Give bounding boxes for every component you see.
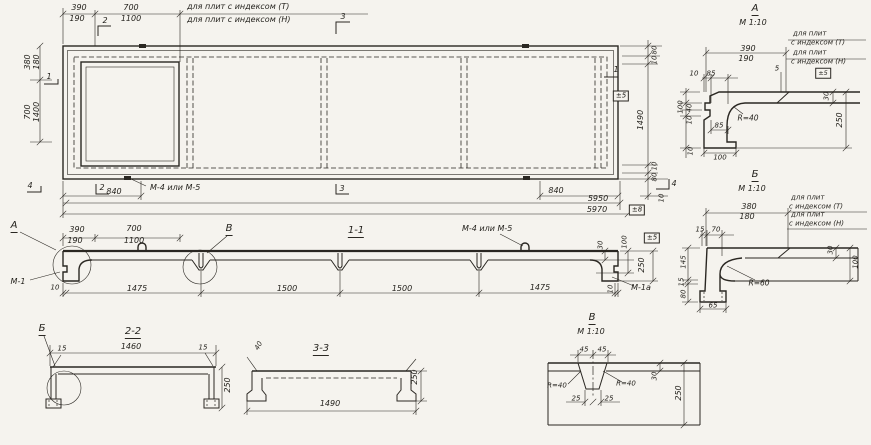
detail-b-dim-100-right: 100 — [853, 255, 860, 268]
detail-b-dim-15-top: 15 — [696, 227, 705, 234]
detail-b-note-line-4: с индексом (Н) — [789, 221, 844, 228]
detail-b-dim-65-foot: 65 — [709, 303, 718, 310]
detail-a-dim-85-mid: 85 — [715, 123, 724, 130]
section-2-2-section-title: 2-2 — [125, 327, 141, 339]
plan-dim-390-top: 390 — [71, 4, 86, 12]
section-1-1-dim-1500-left: 1500 — [277, 285, 297, 293]
plan-dim-840-right: 840 — [548, 187, 563, 195]
plan-dim-5950: 5950 — [588, 195, 608, 203]
section-1-1-dim-1475-right: 1475 — [530, 284, 550, 292]
detail-v-dim-25-right: 25 — [605, 396, 614, 403]
plan-dim-380-left: 380 — [24, 54, 32, 69]
plan-section-mark-1-left: 1 — [46, 73, 51, 81]
detail-b-note-line-3: для плит — [791, 212, 824, 219]
detail-a-dim-250-right: 250 — [836, 112, 844, 127]
detail-v-dim-45-left: 45 — [580, 347, 589, 354]
plan-dim-700-left: 700 — [24, 104, 32, 119]
drawing-labels: 3901907001100для плит с индексом (Т)для … — [0, 0, 871, 445]
detail-v-dim-250: 250 — [675, 385, 683, 400]
detail-a-note-line-4: с индексом (Н) — [791, 59, 846, 66]
detail-v-detail-scale: М 1:10 — [577, 328, 604, 336]
detail-a-dim-190: 190 — [738, 55, 753, 63]
section-2-2-dim-15-left: 15 — [58, 346, 67, 353]
detail-v-dim-45-right: 45 — [598, 347, 607, 354]
detail-a-dim-10-left: 10 — [687, 116, 694, 125]
section-1-1-tol-plus-minus-5: ±5 — [644, 233, 660, 244]
detail-v-detail-title: В — [589, 313, 596, 325]
detail-b-dim-380: 380 — [741, 203, 756, 211]
detail-b-dim-180: 180 — [739, 213, 754, 221]
detail-a-tol-plus-minus-5: ±5 — [815, 68, 831, 79]
detail-a-note-line-3: для плит — [793, 50, 826, 57]
plan-section-mark-1-right: 1 — [613, 66, 618, 74]
plan-dim-10-right-bottom: 10 — [652, 162, 659, 171]
plan-dim-80-right-top: 80 — [652, 46, 659, 55]
detail-b-radius-60: R=60 — [748, 279, 769, 287]
plan-tol-plus-minus-8: ±8 — [629, 205, 645, 216]
plan-dim-190-top: 190 — [69, 15, 84, 23]
detail-b-detail-title: Б — [752, 170, 759, 182]
detail-v-dim-30: 30 — [652, 372, 659, 381]
drawing-canvas: 3901907001100для плит с индексом (Т)для … — [0, 0, 871, 445]
plan-note-plates-index-n: для плит с индексом (Н) — [187, 16, 291, 24]
plan-dim-840-left: 840 — [106, 188, 121, 196]
plan-note-plates-index-t: для плит с индексом (Т) — [187, 3, 289, 11]
detail-b-note-line-1: для плит — [791, 195, 824, 202]
plan-dim-10-right-outer: 10 — [659, 194, 666, 203]
plan-dim-1400-left: 1400 — [33, 102, 41, 122]
section-1-1-callout-m1a: М-1а — [631, 284, 651, 292]
section-2-2-dim-15-right: 15 — [199, 345, 208, 352]
detail-a-radius-40: R=40 — [737, 114, 758, 122]
section-1-1-dim-1100: 1100 — [124, 237, 144, 245]
detail-a-dim-390: 390 — [740, 45, 755, 53]
section-1-1-dim-1475-left: 1475 — [127, 285, 147, 293]
plan-dim-180-left: 180 — [33, 54, 41, 69]
plan-section-mark-3-top: 3 — [340, 13, 345, 21]
detail-b-dim-15-left: 15 — [679, 278, 686, 287]
detail-a-note-line-1: для плит — [793, 31, 826, 38]
section-1-1-dim-700: 700 — [126, 225, 141, 233]
section-1-1-dim-190: 190 — [67, 237, 82, 245]
detail-a-dim-85-top: 85 — [707, 71, 716, 78]
section-3-3-section-title: 3-3 — [313, 344, 329, 356]
section-1-1-section-title: 1-1 — [348, 226, 364, 238]
section-1-1-callout-m4-m5: М-4 или М-5 — [462, 225, 512, 233]
section-1-1-dim-10-left: 10 — [51, 285, 60, 292]
detail-b-dim-145-left: 145 — [681, 255, 688, 268]
section-1-1-dim-30-right: 30 — [598, 241, 605, 250]
section-2-2-dim-1460: 1460 — [121, 343, 141, 351]
detail-v-dim-25-left: 25 — [572, 396, 581, 403]
detail-a-note-line-2: с индексом (Т) — [791, 40, 845, 47]
section-3-3-dim-1490: 1490 — [320, 400, 340, 408]
detail-b-note-line-2: с индексом (Т) — [789, 204, 843, 211]
section-1-1-dim-250-right: 250 — [638, 257, 646, 272]
detail-a-dim-5: 5 — [775, 66, 779, 73]
detail-a-dim-100-left: 100 — [678, 100, 685, 113]
detail-a-dim-30-right: 30 — [824, 92, 831, 101]
detail-b-detail-scale: М 1:10 — [738, 185, 765, 193]
plan-callout-m4-m5-plan: М-4 или М-5 — [150, 184, 200, 192]
plan-dim-1100-top: 1100 — [121, 15, 141, 23]
plan-dim-5970: 5970 — [587, 206, 607, 214]
plan-tol-plus-minus-5-plan: ±5 — [613, 91, 629, 102]
section-3-3-dim-40: 40 — [254, 340, 265, 351]
plan-dim-10-right-top: 10 — [652, 56, 659, 65]
plan-section-mark-4-right: 4 — [671, 180, 676, 188]
section-1-1-dim-10-right: 10 — [608, 285, 615, 294]
plan-dim-80-right-bottom: 80 — [652, 173, 659, 182]
section-2-2-dim-250: 250 — [224, 377, 232, 392]
detail-a-detail-scale: М 1:10 — [739, 19, 766, 27]
section-3-3-dim-250: 250 — [411, 369, 419, 384]
section-1-1-callout-m1: М-1 — [11, 278, 26, 286]
detail-b-dim-80-left: 80 — [681, 290, 688, 299]
detail-a-detail-title: А — [752, 4, 759, 16]
section-1-1-dim-100-right: 100 — [622, 235, 629, 248]
section-2-2-detail-callout-b: Б — [39, 324, 46, 336]
detail-b-dim-70-top: 70 — [712, 227, 721, 234]
detail-a-dim-40-left: 40 — [687, 104, 694, 113]
section-1-1-dim-390: 390 — [69, 226, 84, 234]
section-1-1-detail-callout-v: В — [226, 224, 233, 236]
detail-a-dim-10-top: 10 — [690, 71, 699, 78]
plan-dim-700-top: 700 — [123, 4, 138, 12]
detail-v-radius-40-right: R=40 — [616, 381, 636, 388]
plan-dim-1490-right: 1490 — [637, 110, 645, 130]
section-1-1-detail-callout-a: А — [11, 221, 18, 233]
detail-v-radius-40-left: R=40 — [547, 383, 567, 390]
detail-a-dim-10-foot: 10 — [688, 147, 695, 156]
detail-b-dim-30-right: 30 — [828, 246, 835, 255]
plan-section-mark-2-bottom: 2 — [99, 184, 104, 192]
detail-a-dim-100-foot: 100 — [713, 155, 726, 162]
plan-section-mark-2-top: 2 — [102, 17, 107, 25]
plan-section-mark-4-left: 4 — [27, 182, 32, 190]
section-1-1-dim-1500-right: 1500 — [392, 285, 412, 293]
plan-section-mark-3-bottom: 3 — [339, 185, 344, 193]
